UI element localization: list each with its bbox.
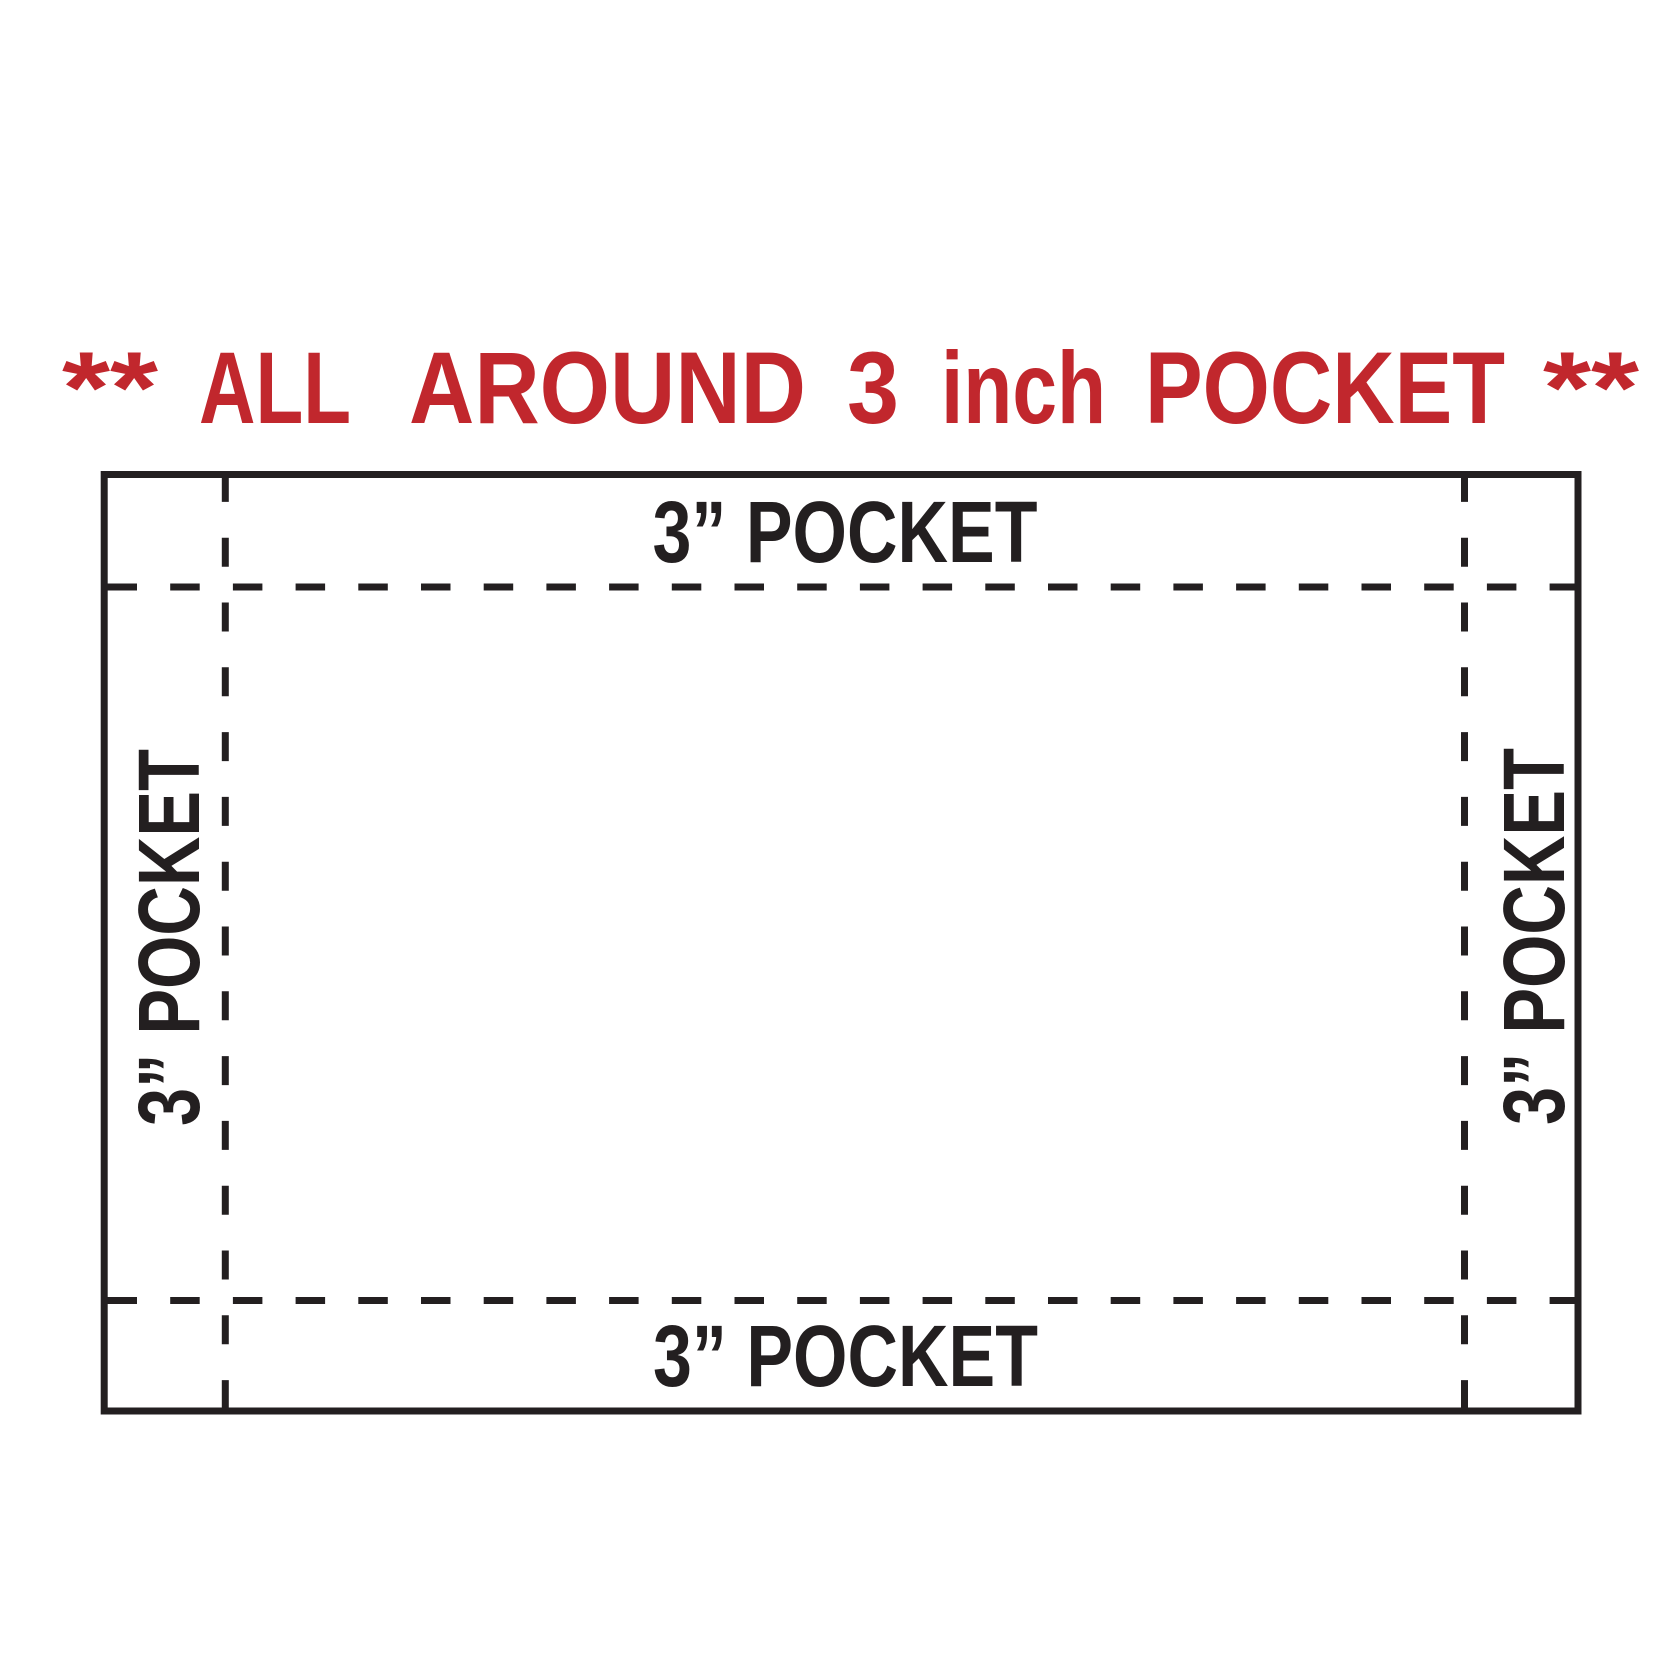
svg-text:3” POCKET: 3” POCKET <box>121 749 218 1126</box>
svg-text:3: 3 <box>847 331 899 445</box>
svg-text:3” POCKET: 3” POCKET <box>653 484 1038 581</box>
svg-text:**: ** <box>62 331 158 445</box>
svg-text:3” POCKET: 3” POCKET <box>653 1308 1038 1405</box>
svg-text:AROUND: AROUND <box>409 331 806 445</box>
svg-text:POCKET: POCKET <box>1145 331 1505 445</box>
svg-text:inch: inch <box>941 331 1106 445</box>
svg-text:ALL: ALL <box>199 331 351 445</box>
svg-text:3” POCKET: 3” POCKET <box>1486 748 1583 1125</box>
svg-text:**: ** <box>1543 331 1639 445</box>
